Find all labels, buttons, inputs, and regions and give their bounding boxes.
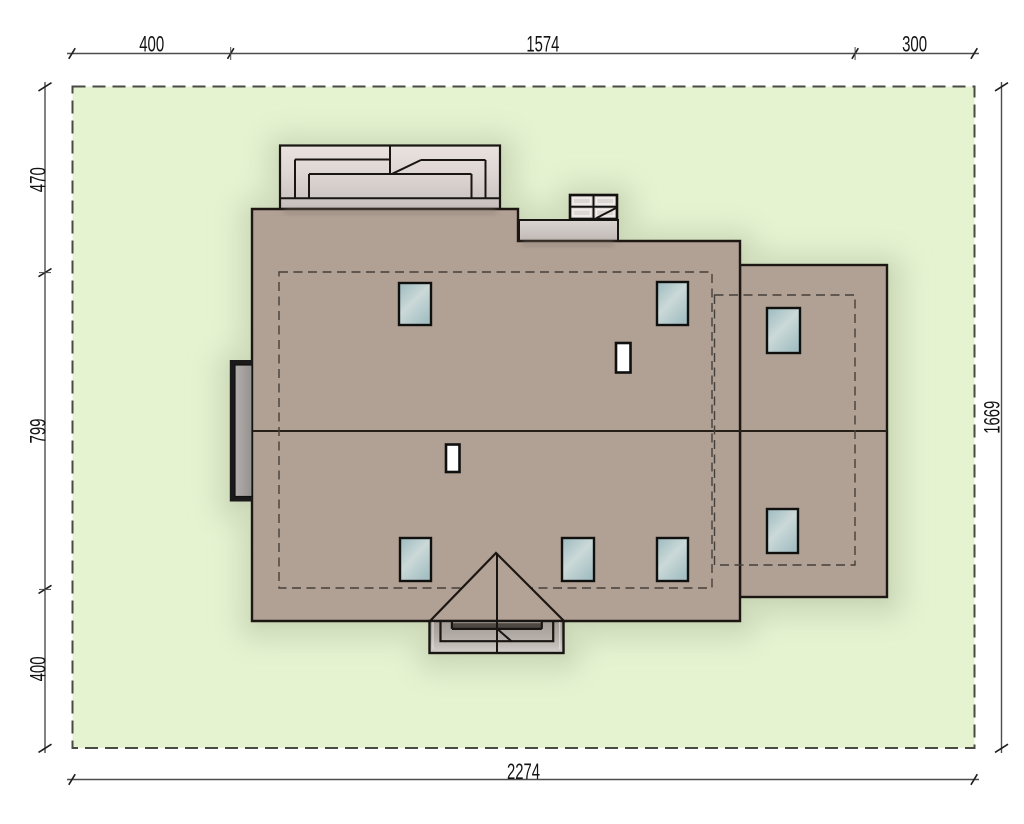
svg-text:1669: 1669 [980,401,1005,434]
svg-text:400: 400 [139,32,164,57]
svg-text:799: 799 [25,419,50,444]
svg-text:300: 300 [902,32,927,57]
svg-text:470: 470 [25,167,50,192]
svg-text:400: 400 [25,656,50,681]
svg-text:1574: 1574 [526,32,559,57]
svg-text:2274: 2274 [507,759,540,784]
